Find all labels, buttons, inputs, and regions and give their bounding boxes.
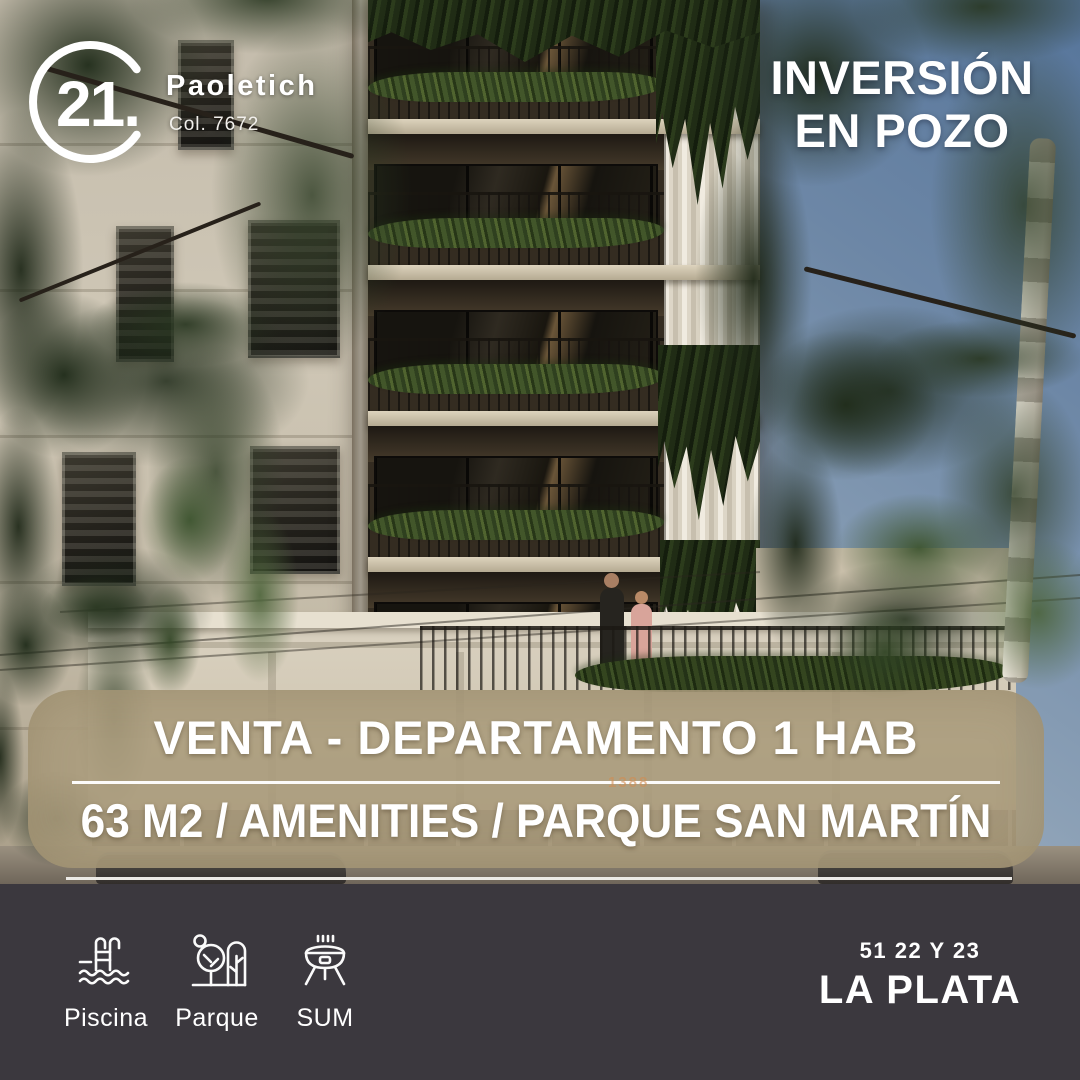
agency-license: Col. 7672	[169, 114, 259, 136]
address-streets: 51 22 Y 23	[790, 938, 1050, 964]
address-block: 51 22 Y 23 LA PLATA	[790, 938, 1050, 1013]
agency-name: Paoletich	[166, 70, 317, 103]
balcony-plants	[575, 656, 1010, 692]
headline-line2: EN POZO	[752, 105, 1052, 158]
banner-divider-line	[72, 781, 1000, 784]
bbq-icon	[293, 928, 357, 992]
address-city: LA PLATA	[790, 968, 1050, 1013]
park-icon	[185, 928, 249, 992]
amenity-label: SUM	[282, 1004, 368, 1033]
headline-line1: INVERSIÓN	[752, 52, 1052, 105]
footer-top-line	[66, 877, 1012, 880]
listing-banner: VENTA - DEPARTAMENTO 1 HAB 63 M2 / AMENI…	[28, 690, 1044, 868]
amenity-piscina: Piscina	[58, 928, 154, 1033]
amenity-label: Piscina	[58, 1004, 154, 1033]
century21-logo: 21. Paoletich Col. 7672	[22, 26, 362, 186]
amenity-sum: SUM	[282, 928, 368, 1033]
listing-subtitle: 63 M2 / AMENITIES / PARQUE SAN MARTÍN	[58, 793, 1013, 848]
pool-icon	[74, 928, 138, 992]
listing-title: VENTA - DEPARTAMENTO 1 HAB	[28, 710, 1044, 765]
headline: INVERSIÓN EN POZO	[752, 52, 1052, 157]
logo-21-text: 21.	[56, 68, 139, 140]
amenity-parque: Parque	[168, 928, 266, 1033]
real-estate-poster: VENTA - DEPARTAMENTO 1 HAB 63 M2 / AMENI…	[0, 0, 1080, 1080]
footer-bar: Piscina Parque SUM 51 22	[0, 884, 1080, 1080]
building-number: 1388	[608, 774, 649, 791]
amenity-label: Parque	[168, 1004, 266, 1033]
